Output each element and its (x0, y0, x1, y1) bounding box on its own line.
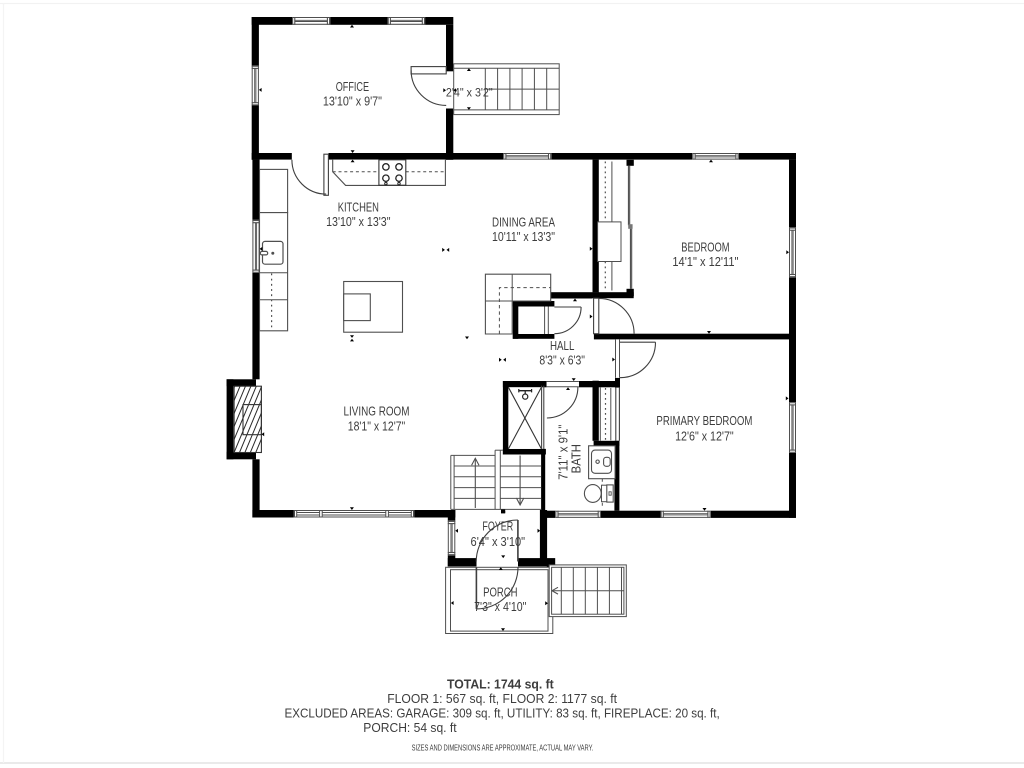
svg-text:KITCHEN: KITCHEN (338, 199, 379, 214)
svg-text:12'6" x 12'7": 12'6" x 12'7" (675, 429, 734, 444)
svg-text:2'4" x 3'2": 2'4" x 3'2" (446, 87, 493, 99)
svg-text:SIZES AND DIMENSIONS ARE APPRO: SIZES AND DIMENSIONS ARE APPROXIMATE, AC… (412, 743, 594, 752)
svg-text:7'3" x 4'10": 7'3" x 4'10" (474, 599, 527, 614)
svg-text:EXCLUDED AREAS: GARAGE: 309 sq: EXCLUDED AREAS: GARAGE: 309 sq. ft, UTIL… (284, 706, 719, 721)
svg-text:10'11" x 13'3": 10'11" x 13'3" (492, 229, 555, 244)
svg-text:DINING AREA: DINING AREA (492, 215, 555, 230)
svg-text:14'1" x 12'11": 14'1" x 12'11" (672, 254, 738, 269)
svg-text:7'11" x 9'1": 7'11" x 9'1" (556, 424, 571, 480)
svg-text:13'10" x 13'3": 13'10" x 13'3" (326, 214, 391, 229)
svg-text:OFFICE: OFFICE (336, 79, 370, 94)
svg-text:HALL: HALL (550, 338, 574, 353)
svg-text:BEDROOM: BEDROOM (681, 239, 729, 254)
svg-text:PRIMARY BEDROOM: PRIMARY BEDROOM (656, 413, 752, 428)
svg-text:FOYER: FOYER (482, 518, 513, 533)
svg-text:TOTAL: 1744 sq. ft: TOTAL: 1744 sq. ft (447, 677, 554, 692)
svg-text:PORCH: PORCH (483, 585, 517, 600)
svg-text:BATH: BATH (569, 444, 584, 473)
svg-text:8'3" x 6'3": 8'3" x 6'3" (539, 353, 585, 368)
svg-text:18'1" x 12'7": 18'1" x 12'7" (348, 418, 406, 433)
svg-text:13'10" x 9'7": 13'10" x 9'7" (323, 94, 382, 109)
svg-text:LIVING ROOM: LIVING ROOM (344, 404, 410, 419)
svg-text:FLOOR 1: 567 sq. ft, FLOOR 2:: FLOOR 1: 567 sq. ft, FLOOR 2: 1177 sq. f… (387, 691, 617, 706)
svg-text:PORCH: 54 sq. ft: PORCH: 54 sq. ft (363, 720, 457, 735)
svg-text:6'4" x 3'10": 6'4" x 3'10" (471, 534, 526, 549)
